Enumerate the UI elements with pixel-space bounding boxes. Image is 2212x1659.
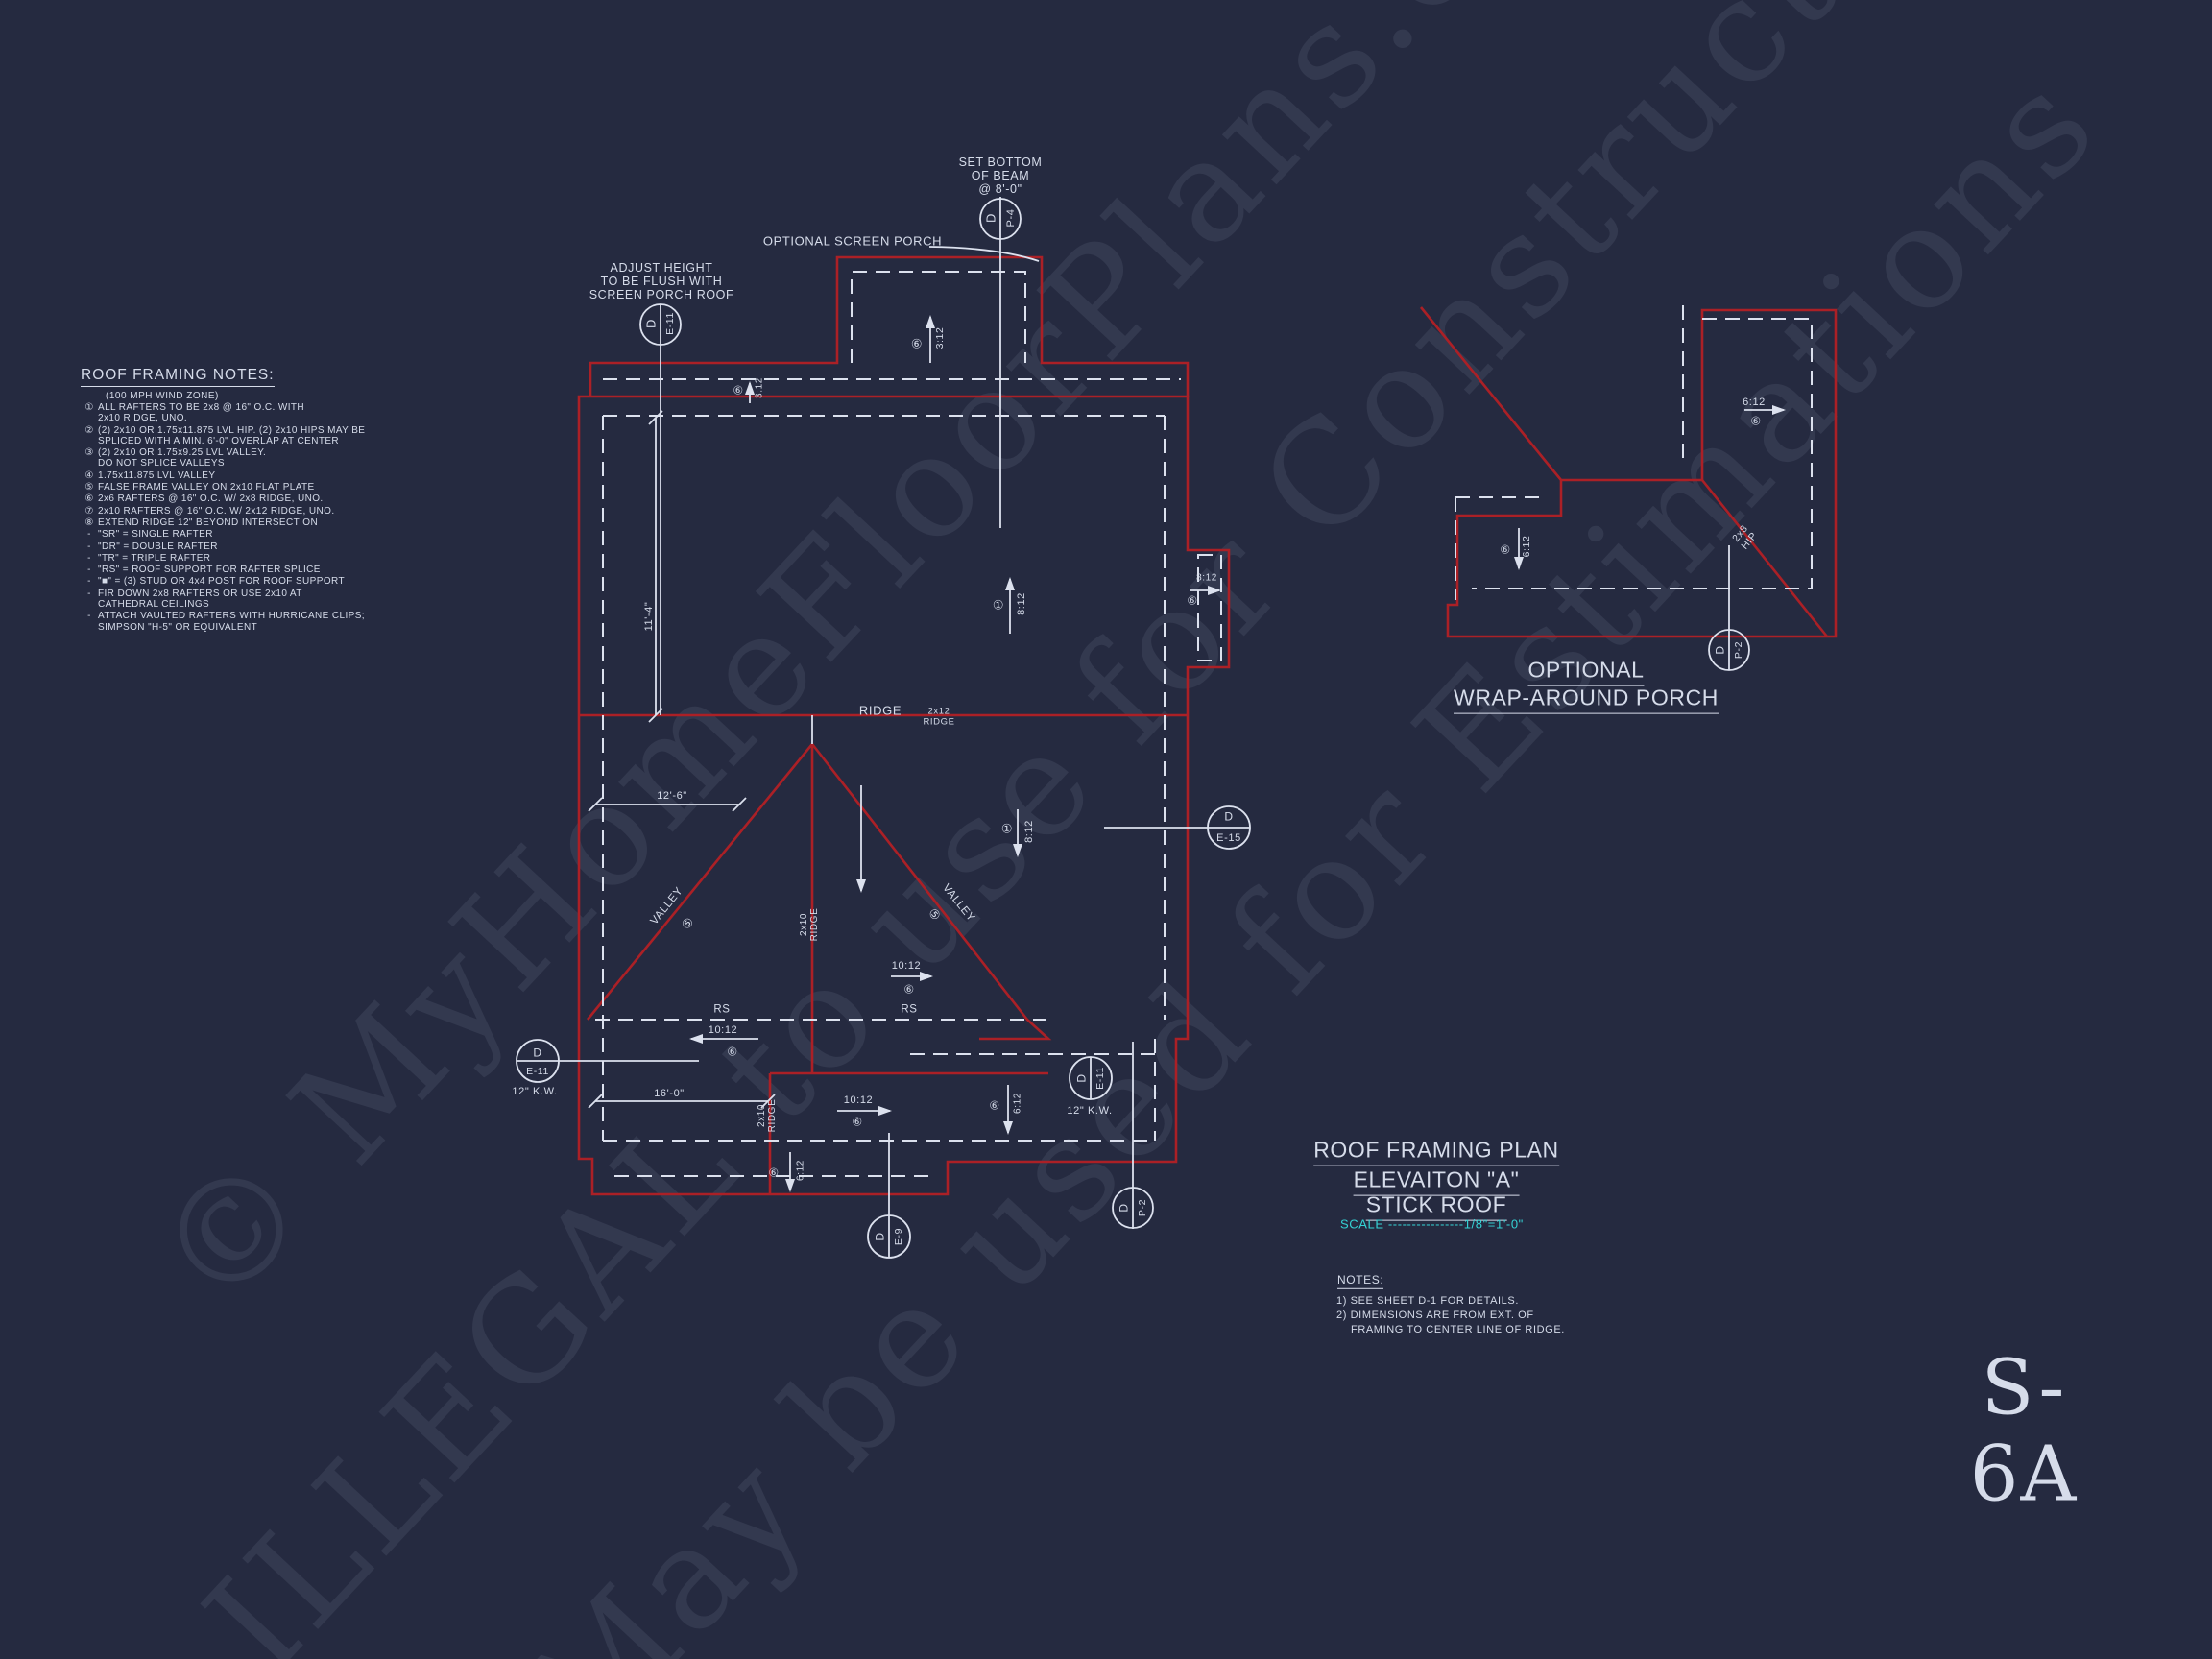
rs-right: RS [901,1004,917,1017]
framing-note-marker: - [81,529,98,540]
framing-note-marker: ③ [81,447,98,469]
main-ridge-label: RIDGE [859,705,902,719]
detail-e15-ref: E-15 [1216,832,1241,844]
framing-note-item-8: ⑧EXTEND RIDGE 12" BEYOND INTERSECTION [81,517,415,528]
framing-note-marker: ② [81,425,98,447]
rs-left: RS [713,1004,730,1017]
titleblock-note-2: 2) DIMENSIONS ARE FROM EXT. OF [1336,1310,1534,1321]
framing-note-marker: - [81,611,98,633]
framing-note-marker: - [81,589,98,611]
framing-note-marker: - [81,553,98,564]
framing-note-item-11: -"TR" = TRIPLE RAFTER [81,553,415,564]
right-pitch-bubble: ⑥ [989,1099,999,1112]
detail-e11-right-ref: E-11 [1095,1067,1107,1090]
main-ridge-size: 2x12 RIDGE [923,707,954,727]
right-pitch: 6:12 [1012,1093,1022,1114]
framing-note-marker: ⑤ [81,482,98,493]
framing-note-text: "DR" = DOUBLE RAFTER [98,541,415,552]
left-pitch: 10:12 [709,1024,738,1036]
upper-pitch: 8:12 [1016,592,1027,615]
blueprint-sheet: © MyHomeFloorPlans.comILLEGAL to use for… [0,0,2212,1659]
detail-e11-left-kneewall: 12" K.W. [512,1086,557,1097]
sheet-number: S-6A [1930,1344,2118,1516]
framing-note-text: ALL RAFTERS TO BE 2x8 @ 16" O.C. WITH 2x… [98,402,415,424]
detail-p2-bottom-d: D [1118,1203,1130,1212]
framing-note-text: (2) 2x10 OR 1.75x9.25 LVL VALLEY. DO NOT… [98,447,415,469]
wrap-pitch-right: 6:12 [1743,397,1766,408]
porch-title-line1: OPTIONAL [1527,659,1644,686]
wrap-pitch-down-bubble: ⑥ [1500,543,1510,556]
framing-note-text: "SR" = SINGLE RAFTER [98,529,415,540]
wrap-pitch-right-bubble: ⑥ [1750,415,1761,427]
detail-e11-left-ref: E-11 [526,1067,549,1078]
framing-note-text: FALSE FRAME VALLEY ON 2x10 FLAT PLATE [98,482,415,493]
detail-e11-left-d: D [533,1046,541,1059]
mid-pitch: 10:12 [844,1094,874,1106]
framing-note-item-9: -"SR" = SINGLE RAFTER [81,529,415,540]
plan-title-line1: ROOF FRAMING PLAN [1313,1139,1559,1166]
roof-framing-notes-title: ROOF FRAMING NOTES: [81,367,275,387]
lower-pitch-bubble: ① [1001,823,1013,837]
detail-p2-porch-ref: P-2 [1734,641,1745,659]
detail-e11-top-d: D [645,319,660,328]
porch-title-line2: WRAP-AROUND PORCH [1454,686,1719,714]
lower-pitch: 8:12 [1023,820,1035,843]
detail-p4-d: D [985,213,999,223]
valley-left-bubble: ⑤ [679,915,697,933]
roof-framing-notes-list: ①ALL RAFTERS TO BE 2x8 @ 16" O.C. WITH 2… [81,402,415,633]
wing-ridge-label: 2x10 RIDGE [757,1099,778,1133]
framing-note-item-2: ②(2) 2x10 OR 1.75x11.875 LVL HIP. (2) 2x… [81,425,415,447]
framing-note-item-13: -"■" = (3) STUD OR 4x4 POST FOR ROOF SUP… [81,576,415,587]
titleblock-note-2b: FRAMING TO CENTER LINE OF RIDGE. [1351,1324,1565,1335]
framing-note-text: ATTACH VAULTED RAFTERS WITH HURRICANE CL… [98,611,415,633]
titleblock-note-1: 1) SEE SHEET D-1 FOR DETAILS. [1336,1295,1519,1307]
plan-scale: SCALE ----------------1/8"=1'-0" [1340,1218,1524,1233]
bottom-pitch: 6:12 [795,1160,805,1181]
center-ridge-label: 2x10 RIDGE [799,908,820,942]
framing-note-marker: - [81,541,98,552]
framing-note-text: FIR DOWN 2x8 RAFTERS OR USE 2x10 AT CATH… [98,589,415,611]
detail-e11-right-kneewall: 12" K.W. [1067,1105,1112,1117]
wrap-hip-label: 2x8 HIP [1731,523,1760,552]
detail-e11-right-d: D [1075,1073,1088,1082]
valley-right-bubble: ⑤ [925,906,943,925]
detail-p2-porch-d: D [1714,645,1726,654]
annotation-layer: SET BOTTOM OF BEAM @ 8'-0"OPTIONAL SCREE… [0,0,2212,1659]
framing-note-item-10: -"DR" = DOUBLE RAFTER [81,541,415,552]
strip-pitch-bubble: ⑥ [733,384,743,397]
dim-11-4: 11'-4" [643,602,655,632]
optional-screen-porch-note: OPTIONAL SCREEN PORCH [763,235,942,250]
valley-right-label: VALLEY [939,882,976,925]
dim-12-6: 12'-6" [657,790,687,802]
wrap-pitch-down: 6:12 [1522,536,1533,558]
detail-e15-d: D [1224,810,1233,823]
framing-note-text: "TR" = TRIPLE RAFTER [98,553,415,564]
dim-16-0: 16'-0" [654,1088,685,1099]
upper-pitch-bubble: ① [993,599,1004,613]
framing-note-text: EXTEND RIDGE 12" BEYOND INTERSECTION [98,517,415,528]
valley-pitch-bubble: ⑥ [903,983,914,996]
framing-note-text: (2) 2x10 OR 1.75x11.875 LVL HIP. (2) 2x1… [98,425,415,447]
framing-note-item-6: ⑥2x6 RAFTERS @ 16" O.C. W/ 2x8 RIDGE, UN… [81,493,415,504]
porch-pitch-bubble: ⑥ [911,338,923,352]
framing-note-item-4: ④1.75x11.875 LVL VALLEY [81,470,415,481]
framing-note-item-1: ①ALL RAFTERS TO BE 2x8 @ 16" O.C. WITH 2… [81,402,415,424]
framing-note-marker: ⑦ [81,506,98,517]
framing-note-marker: ⑧ [81,517,98,528]
set-bottom-of-beam-note: SET BOTTOM OF BEAM @ 8'-0" [959,156,1043,196]
framing-note-marker: ⑥ [81,493,98,504]
detail-p4-ref: P-4 [1005,209,1017,228]
framing-note-marker: - [81,565,98,575]
framing-note-marker: - [81,576,98,587]
wind-zone-subtitle: (100 MPH WIND ZONE) [106,391,415,401]
titleblock-notes-title: NOTES: [1337,1274,1383,1289]
roof-framing-notes: ROOF FRAMING NOTES: (100 MPH WIND ZONE) … [81,367,415,634]
bottom-pitch-bubble: ⑥ [768,1166,779,1179]
strip-pitch: 3:12 [754,377,764,398]
framing-note-text: "■" = (3) STUD OR 4x4 POST FOR ROOF SUPP… [98,576,415,587]
porch-pitch: 3:12 [935,327,947,349]
framing-note-item-7: ⑦2x10 RAFTERS @ 16" O.C. W/ 2x12 RIDGE, … [81,506,415,517]
bump-pitch: 8:12 [1196,572,1217,583]
framing-note-text: "RS" = ROOF SUPPORT FOR RAFTER SPLICE [98,565,415,575]
framing-note-item-5: ⑤FALSE FRAME VALLEY ON 2x10 FLAT PLATE [81,482,415,493]
framing-note-marker: ① [81,402,98,424]
framing-note-item-12: -"RS" = ROOF SUPPORT FOR RAFTER SPLICE [81,565,415,575]
framing-note-marker: ④ [81,470,98,481]
valley-pitch: 10:12 [892,960,922,972]
left-pitch-bubble: ⑥ [727,1046,737,1058]
adjust-height-note: ADJUST HEIGHT TO BE FLUSH WITH SCREEN PO… [589,261,734,301]
framing-note-item-14: -FIR DOWN 2x8 RAFTERS OR USE 2x10 AT CAT… [81,589,415,611]
framing-note-text: 1.75x11.875 LVL VALLEY [98,470,415,481]
detail-e11-top-ref: E-11 [665,312,677,335]
detail-e9-ref: E-9 [894,1228,905,1245]
framing-note-text: 2x10 RAFTERS @ 16" O.C. W/ 2x12 RIDGE, U… [98,506,415,517]
framing-note-item-3: ③(2) 2x10 OR 1.75x9.25 LVL VALLEY. DO NO… [81,447,415,469]
framing-note-item-15: -ATTACH VAULTED RAFTERS WITH HURRICANE C… [81,611,415,633]
bump-pitch-bubble: ⑥ [1187,594,1197,607]
detail-p2-bottom-ref: P-2 [1138,1199,1149,1216]
framing-note-text: 2x6 RAFTERS @ 16" O.C. W/ 2x8 RIDGE, UNO… [98,493,415,504]
mid-pitch-bubble: ⑥ [852,1116,862,1128]
detail-e9-d: D [874,1232,886,1240]
